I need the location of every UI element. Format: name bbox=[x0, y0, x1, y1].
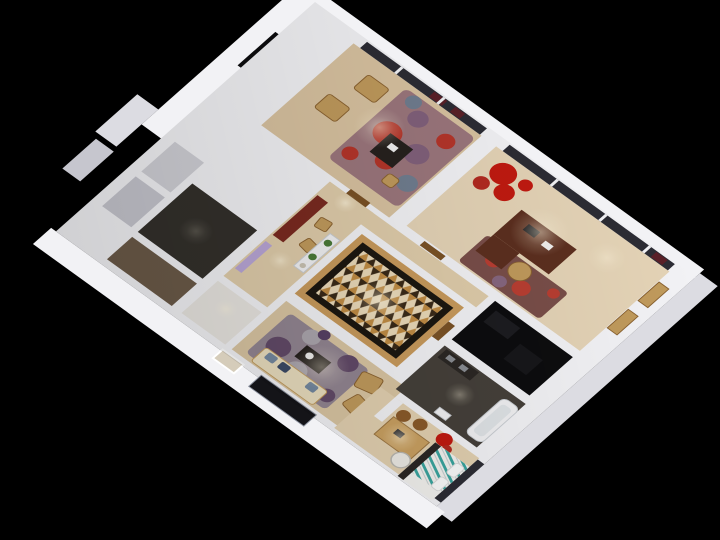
apartment-render-viewport bbox=[0, 0, 720, 540]
floorplan-render bbox=[0, 0, 720, 540]
